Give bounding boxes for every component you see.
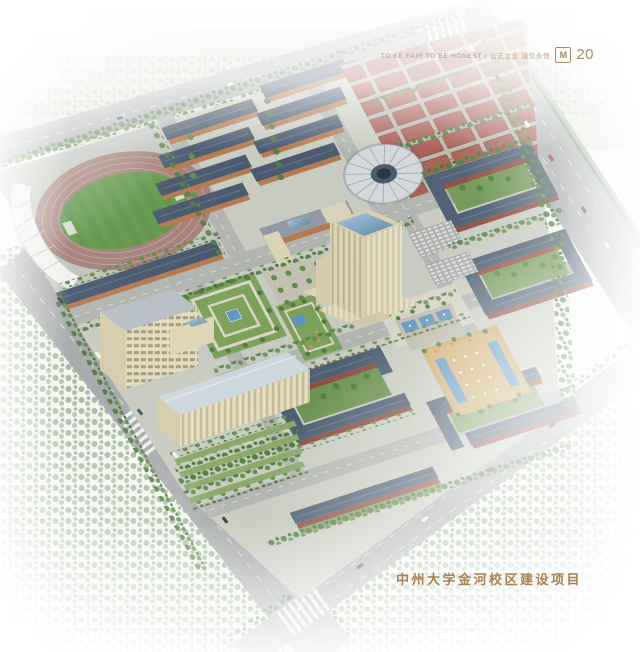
project-caption: 中州大学金河校区建设项目: [396, 569, 582, 588]
header-slogan: TO BE FAIR TO BE HONEST /公正立业 诚信永恒: [381, 50, 551, 60]
slogan-separator: /: [485, 53, 488, 60]
slogan-zh: 公正立业 诚信永恒: [490, 53, 550, 60]
publisher-logo-icon: M: [555, 47, 571, 63]
campus-rendering-page: TO BE FAIR TO BE HONEST /公正立业 诚信永恒 M 20 …: [0, 0, 640, 652]
header-strip: TO BE FAIR TO BE HONEST /公正立业 诚信永恒 M 20: [381, 46, 594, 63]
haze-overlay: [0, 0, 640, 652]
page-number: 20: [576, 46, 594, 63]
campus-aerial-rendering: [0, 0, 640, 652]
slogan-en: TO BE FAIR TO BE HONEST: [381, 53, 483, 60]
